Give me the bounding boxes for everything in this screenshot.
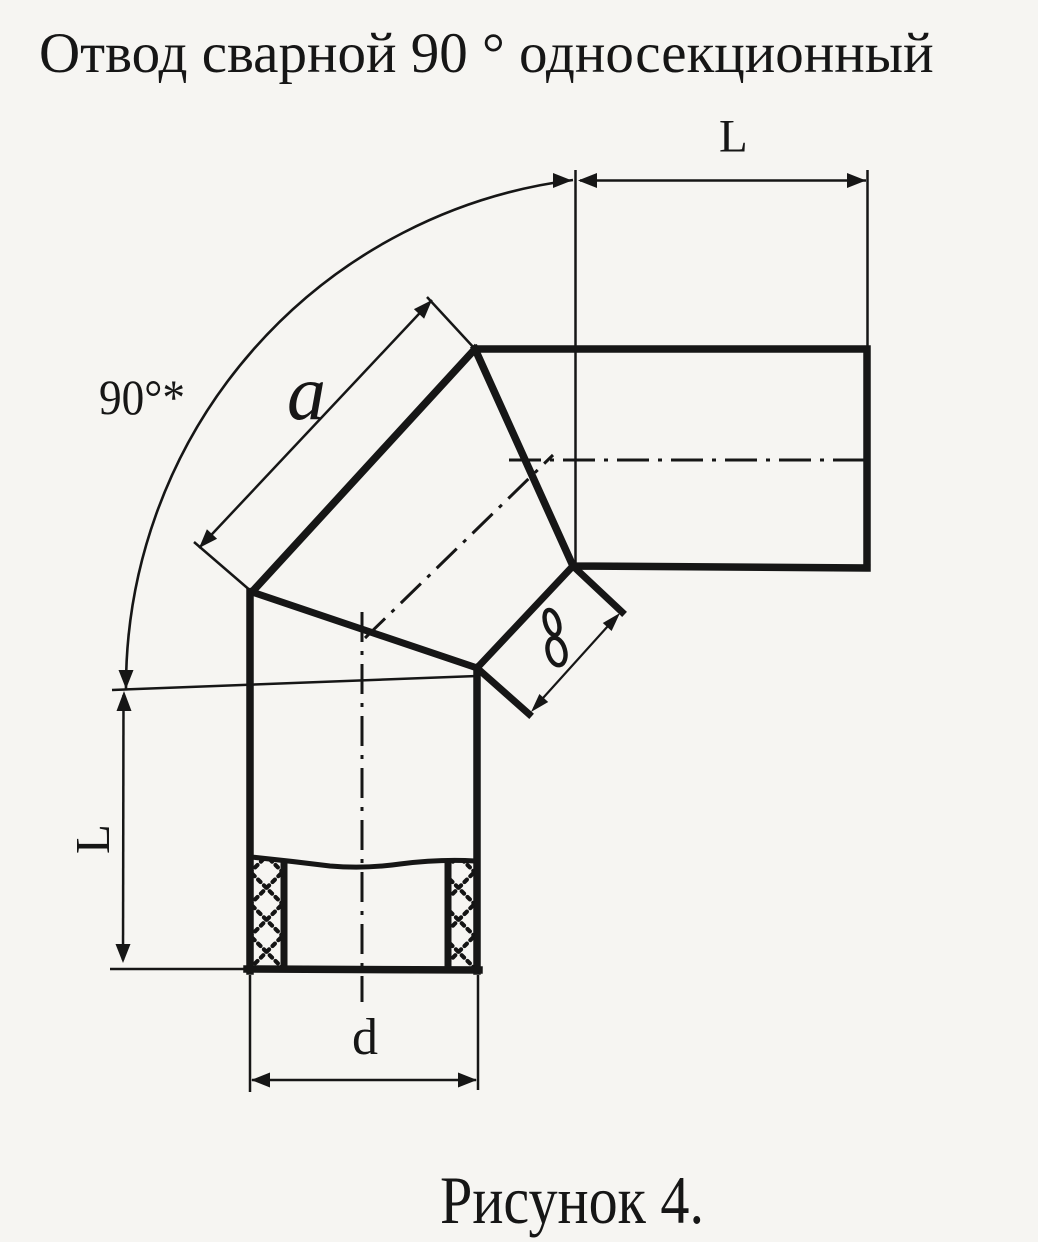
svg-text:a: a [287, 349, 326, 436]
svg-text:90°*: 90°* [99, 369, 185, 425]
svg-text:L: L [65, 824, 120, 854]
svg-text:d: d [352, 1009, 378, 1066]
svg-text:Отвод сварной 90 ° односекцион: Отвод сварной 90 ° односекционный [39, 22, 934, 85]
svg-text:L: L [719, 111, 748, 163]
svg-text:Рисунок 4.: Рисунок 4. [440, 1162, 704, 1238]
